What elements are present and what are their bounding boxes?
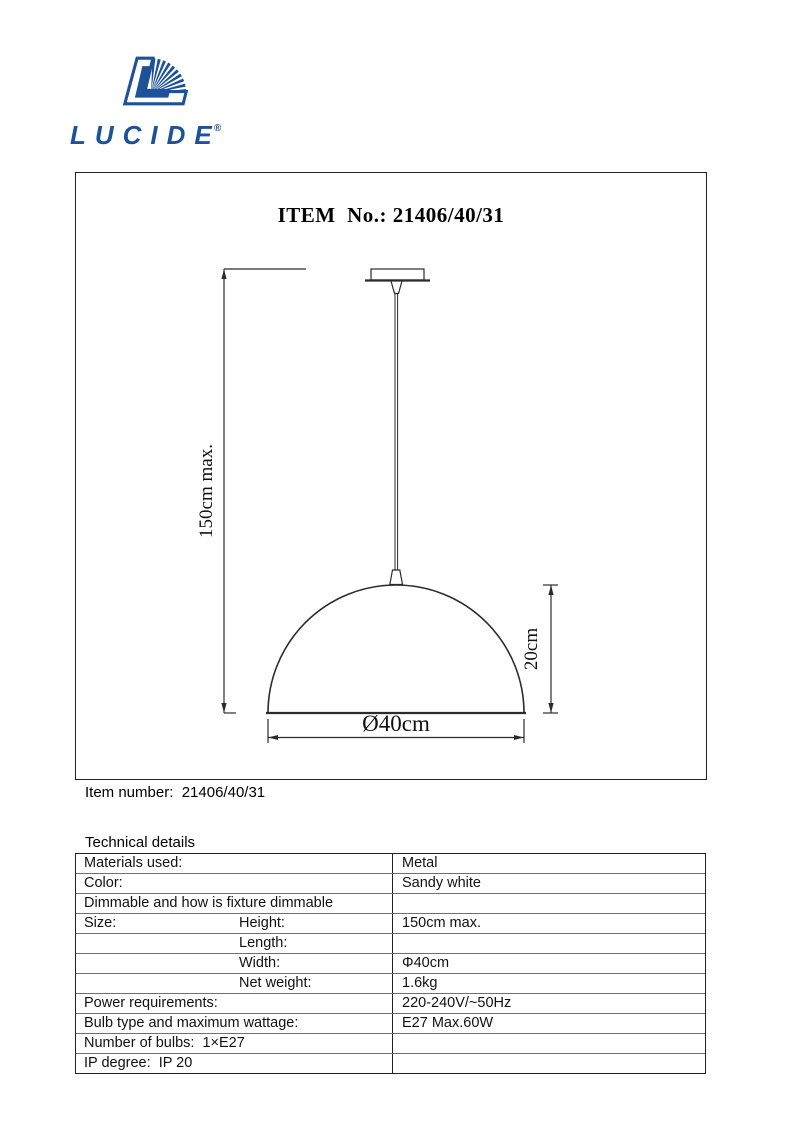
table-row: Power requirements:220-240V/~50Hz: [76, 993, 705, 1013]
table-cell-value: Metal: [393, 854, 705, 873]
table-cell-label: Dimmable and how is fixture dimmable: [76, 894, 393, 913]
table-cell-value: [393, 934, 705, 953]
item-number-label: Item number:: [85, 784, 173, 801]
page: LUCIDE® ITEM No.: 21406/40/31: [0, 0, 802, 1134]
table-cell-label: IP degree: IP 20: [76, 1054, 393, 1073]
item-number: 21406/40/31: [182, 784, 265, 801]
table-cell-value: E27 Max.60W: [393, 1014, 705, 1033]
table-row: Width:Φ40cm: [76, 953, 705, 973]
table-cell-value: 220-240V/~50Hz: [393, 994, 705, 1013]
table-row: Bulb type and maximum wattage:E27 Max.60…: [76, 1013, 705, 1033]
tech-details-heading: Technical details: [85, 834, 195, 851]
table-cell-label: Number of bulbs: 1×E27: [76, 1034, 393, 1053]
table-cell-label: Color:: [76, 874, 393, 893]
row-label: Power requirements:: [84, 995, 218, 1011]
lucide-logo-mark-icon: [116, 52, 188, 110]
table-cell-label: Bulb type and maximum wattage:: [76, 1014, 393, 1033]
row-label: Color:: [84, 875, 123, 891]
lucide-logo: LUCIDE®: [0, 0, 260, 170]
table-cell-value: [393, 1054, 705, 1073]
table-row: Net weight:1.6kg: [76, 973, 705, 993]
table-row: Dimmable and how is fixture dimmable: [76, 893, 705, 913]
table-cell-label: Length:: [76, 934, 393, 953]
dim-label-height: 150cm max.: [196, 444, 217, 538]
dim-label-diameter: Ø40cm: [362, 711, 430, 736]
table-cell-label: Materials used:: [76, 854, 393, 873]
table-cell-value: 1.6kg: [393, 974, 705, 993]
row-sublabel: Height:: [239, 914, 285, 933]
table-row: Length:: [76, 933, 705, 953]
row-label: Number of bulbs: 1×E27: [84, 1035, 245, 1051]
table-row: Number of bulbs: 1×E27: [76, 1033, 705, 1053]
row-label: Materials used:: [84, 855, 182, 871]
row-label: Size:: [84, 915, 116, 931]
table-row: Size:Height:150cm max.: [76, 913, 705, 933]
drawing-box: ITEM No.: 21406/40/31: [75, 172, 707, 780]
item-number-value: [173, 784, 181, 801]
table-cell-value: [393, 894, 705, 913]
table-cell-value: Φ40cm: [393, 954, 705, 973]
registered-trademark-mark: ®: [214, 123, 221, 134]
logo-brand-text: LUCIDE: [70, 120, 221, 150]
table-cell-value: 150cm max.: [393, 914, 705, 933]
table-cell-value: Sandy white: [393, 874, 705, 893]
tech-table: Materials used:MetalColor:Sandy whiteDim…: [75, 853, 706, 1074]
row-label: Dimmable and how is fixture dimmable: [84, 895, 333, 911]
row-sublabel: Length:: [239, 934, 287, 953]
table-cell-label: Size:Height:: [76, 914, 393, 933]
item-number-line: Item number: 21406/40/31: [85, 784, 265, 801]
table-cell-label: Width:: [76, 954, 393, 973]
row-sublabel: Net weight:: [239, 974, 312, 993]
table-cell-label: Power requirements:: [76, 994, 393, 1013]
row-label: IP degree: IP 20: [84, 1055, 192, 1071]
table-row: IP degree: IP 20: [76, 1053, 705, 1073]
table-cell-label: Net weight:: [76, 974, 393, 993]
row-sublabel: Width:: [239, 954, 280, 973]
table-row: Color:Sandy white: [76, 873, 705, 893]
table-cell-value: [393, 1034, 705, 1053]
logo-wordmark: LUCIDE®: [70, 120, 221, 151]
pendant-lamp-diagram: 150cm max. 20cm Ø40cm: [76, 173, 706, 779]
table-row: Materials used:Metal: [76, 854, 705, 873]
dim-label-shade-height: 20cm: [521, 628, 542, 670]
row-label: Bulb type and maximum wattage:: [84, 1015, 298, 1031]
